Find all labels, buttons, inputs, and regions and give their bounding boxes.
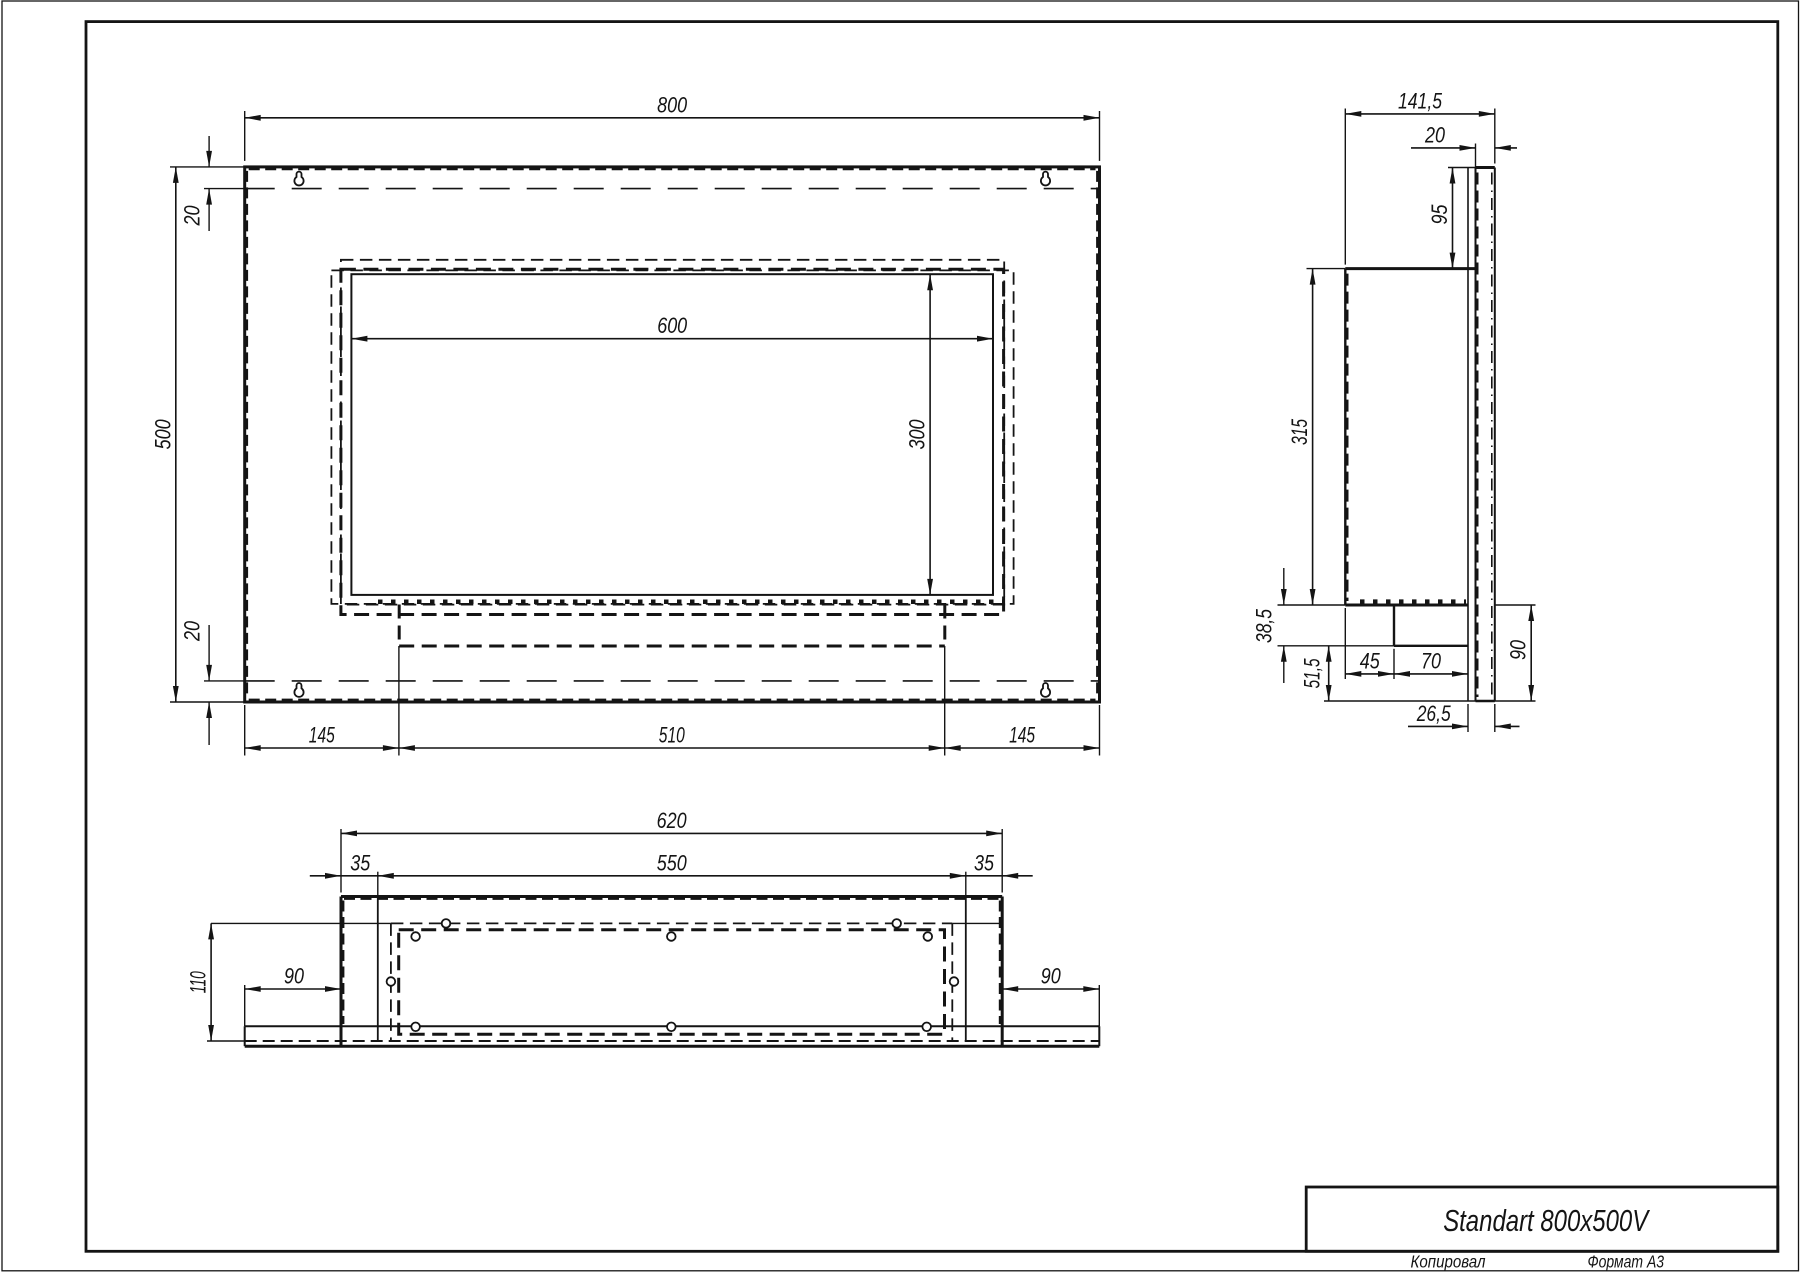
svg-text:110: 110 (186, 971, 211, 993)
svg-text:300: 300 (905, 419, 930, 449)
svg-text:20: 20 (180, 621, 205, 642)
svg-text:145: 145 (1009, 723, 1035, 748)
svg-text:550: 550 (657, 850, 687, 875)
svg-text:35: 35 (350, 850, 370, 875)
svg-text:315: 315 (1287, 419, 1312, 445)
svg-text:141,5: 141,5 (1398, 88, 1442, 113)
svg-text:90: 90 (1041, 964, 1061, 989)
svg-text:95: 95 (1427, 204, 1452, 224)
svg-text:26,5: 26,5 (1416, 701, 1451, 726)
svg-text:45: 45 (1360, 648, 1380, 673)
svg-text:51,5: 51,5 (1300, 658, 1325, 688)
svg-text:35: 35 (974, 850, 994, 875)
svg-text:600: 600 (657, 313, 687, 338)
svg-text:38,5: 38,5 (1252, 609, 1277, 643)
svg-text:Копировал: Копировал (1411, 1252, 1486, 1272)
svg-text:145: 145 (309, 723, 335, 748)
svg-text:20: 20 (1424, 122, 1445, 147)
svg-text:20: 20 (180, 205, 205, 226)
svg-text:500: 500 (150, 419, 175, 449)
svg-text:620: 620 (657, 808, 687, 833)
svg-text:510: 510 (659, 723, 685, 748)
svg-text:90: 90 (284, 964, 304, 989)
svg-text:70: 70 (1421, 648, 1441, 673)
svg-text:800: 800 (657, 92, 687, 117)
svg-text:Формат А3: Формат А3 (1588, 1252, 1665, 1272)
svg-text:Standart 800x500V: Standart 800x500V (1443, 1203, 1651, 1238)
svg-text:90: 90 (1506, 640, 1531, 660)
